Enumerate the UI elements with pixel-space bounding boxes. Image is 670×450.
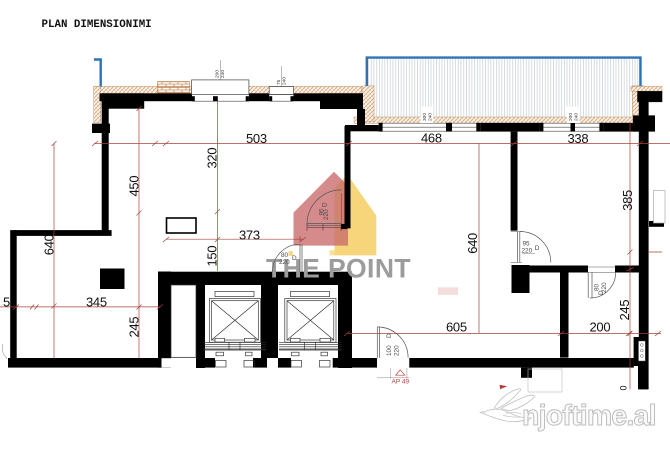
svg-text:220: 220 bbox=[323, 209, 330, 220]
svg-text:D: D bbox=[321, 202, 328, 207]
svg-text:450: 450 bbox=[127, 176, 142, 197]
svg-text:640: 640 bbox=[42, 234, 57, 255]
svg-text:385: 385 bbox=[620, 190, 635, 211]
svg-text:245: 245 bbox=[127, 317, 142, 338]
svg-text:100: 100 bbox=[386, 345, 393, 356]
svg-text:D: D bbox=[292, 255, 297, 262]
svg-text:200: 200 bbox=[568, 113, 574, 121]
svg-text:240: 240 bbox=[428, 113, 434, 121]
svg-text:95: 95 bbox=[523, 241, 531, 248]
svg-text:245: 245 bbox=[617, 300, 632, 321]
svg-text:345: 345 bbox=[86, 295, 107, 310]
svg-text:240: 240 bbox=[220, 70, 226, 78]
svg-text:D: D bbox=[535, 245, 540, 252]
svg-text:200: 200 bbox=[590, 319, 611, 334]
svg-text:240: 240 bbox=[282, 77, 288, 85]
svg-text:5: 5 bbox=[3, 295, 10, 310]
svg-text:80: 80 bbox=[594, 283, 601, 291]
svg-text:D: D bbox=[598, 290, 605, 295]
svg-text:240: 240 bbox=[574, 113, 580, 121]
svg-text:605: 605 bbox=[446, 320, 467, 335]
svg-text:300: 300 bbox=[422, 113, 428, 121]
svg-text:PLAN DIMENSIONIMI: PLAN DIMENSIONIMI bbox=[42, 19, 152, 31]
svg-text:468: 468 bbox=[421, 130, 442, 145]
svg-text:njoftime.al: njoftime.al bbox=[522, 400, 656, 432]
svg-text:338: 338 bbox=[568, 131, 589, 146]
svg-text:220: 220 bbox=[279, 259, 290, 266]
svg-text:75: 75 bbox=[276, 79, 282, 85]
svg-text:80: 80 bbox=[281, 252, 289, 259]
svg-text:503: 503 bbox=[246, 131, 267, 146]
svg-text:0: 0 bbox=[619, 385, 629, 390]
svg-text:320: 320 bbox=[205, 148, 220, 169]
svg-text:AP 49: AP 49 bbox=[392, 379, 410, 386]
svg-text:200: 200 bbox=[215, 70, 221, 78]
svg-text:640: 640 bbox=[465, 233, 480, 254]
svg-text:373: 373 bbox=[239, 228, 260, 243]
svg-text:150: 150 bbox=[205, 246, 220, 267]
svg-text:220: 220 bbox=[394, 345, 401, 356]
